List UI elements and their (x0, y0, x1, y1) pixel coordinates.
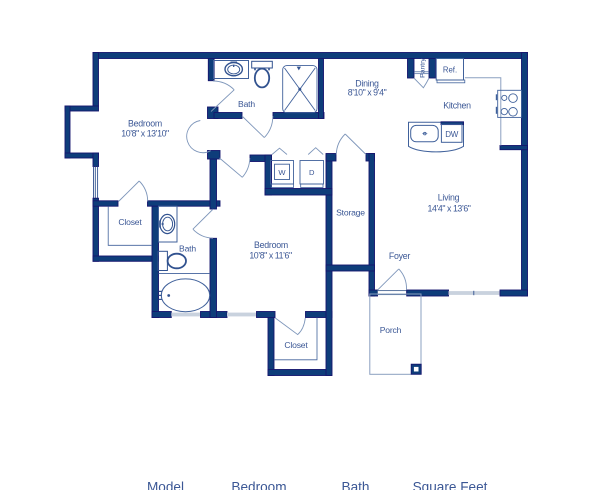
svg-text:DW: DW (445, 130, 459, 139)
svg-text:Living: Living (438, 192, 460, 202)
svg-text:14’4" x 13’6": 14’4" x 13’6" (428, 203, 471, 213)
svg-text:Bath: Bath (179, 243, 196, 253)
svg-text:10’8" x 11’6": 10’8" x 11’6" (249, 250, 292, 260)
svg-text:Pantry: Pantry (420, 58, 427, 78)
svg-text:Model: Model (147, 480, 184, 490)
svg-text:Bath: Bath (238, 99, 255, 109)
svg-text:Kitchen: Kitchen (443, 100, 471, 110)
svg-text:Porch: Porch (380, 325, 402, 335)
svg-text:8’10" x 9’4": 8’10" x 9’4" (348, 87, 387, 97)
svg-text:10’8" x 13’10": 10’8" x 13’10" (121, 129, 169, 139)
svg-text:Bedroom: Bedroom (231, 480, 286, 490)
svg-text:Square Feet: Square Feet (413, 480, 488, 490)
svg-text:Foyer: Foyer (389, 251, 411, 261)
svg-text:Closet: Closet (118, 217, 142, 227)
svg-text:Storage: Storage (336, 208, 365, 218)
svg-text:Bath: Bath (342, 480, 370, 490)
svg-text:Bedroom: Bedroom (254, 240, 288, 250)
svg-text:Closet: Closet (284, 340, 308, 350)
svg-text:Ref.: Ref. (443, 66, 457, 75)
svg-text:W: W (278, 168, 286, 177)
svg-text:Bedroom: Bedroom (128, 118, 162, 128)
svg-text:D: D (309, 168, 315, 177)
